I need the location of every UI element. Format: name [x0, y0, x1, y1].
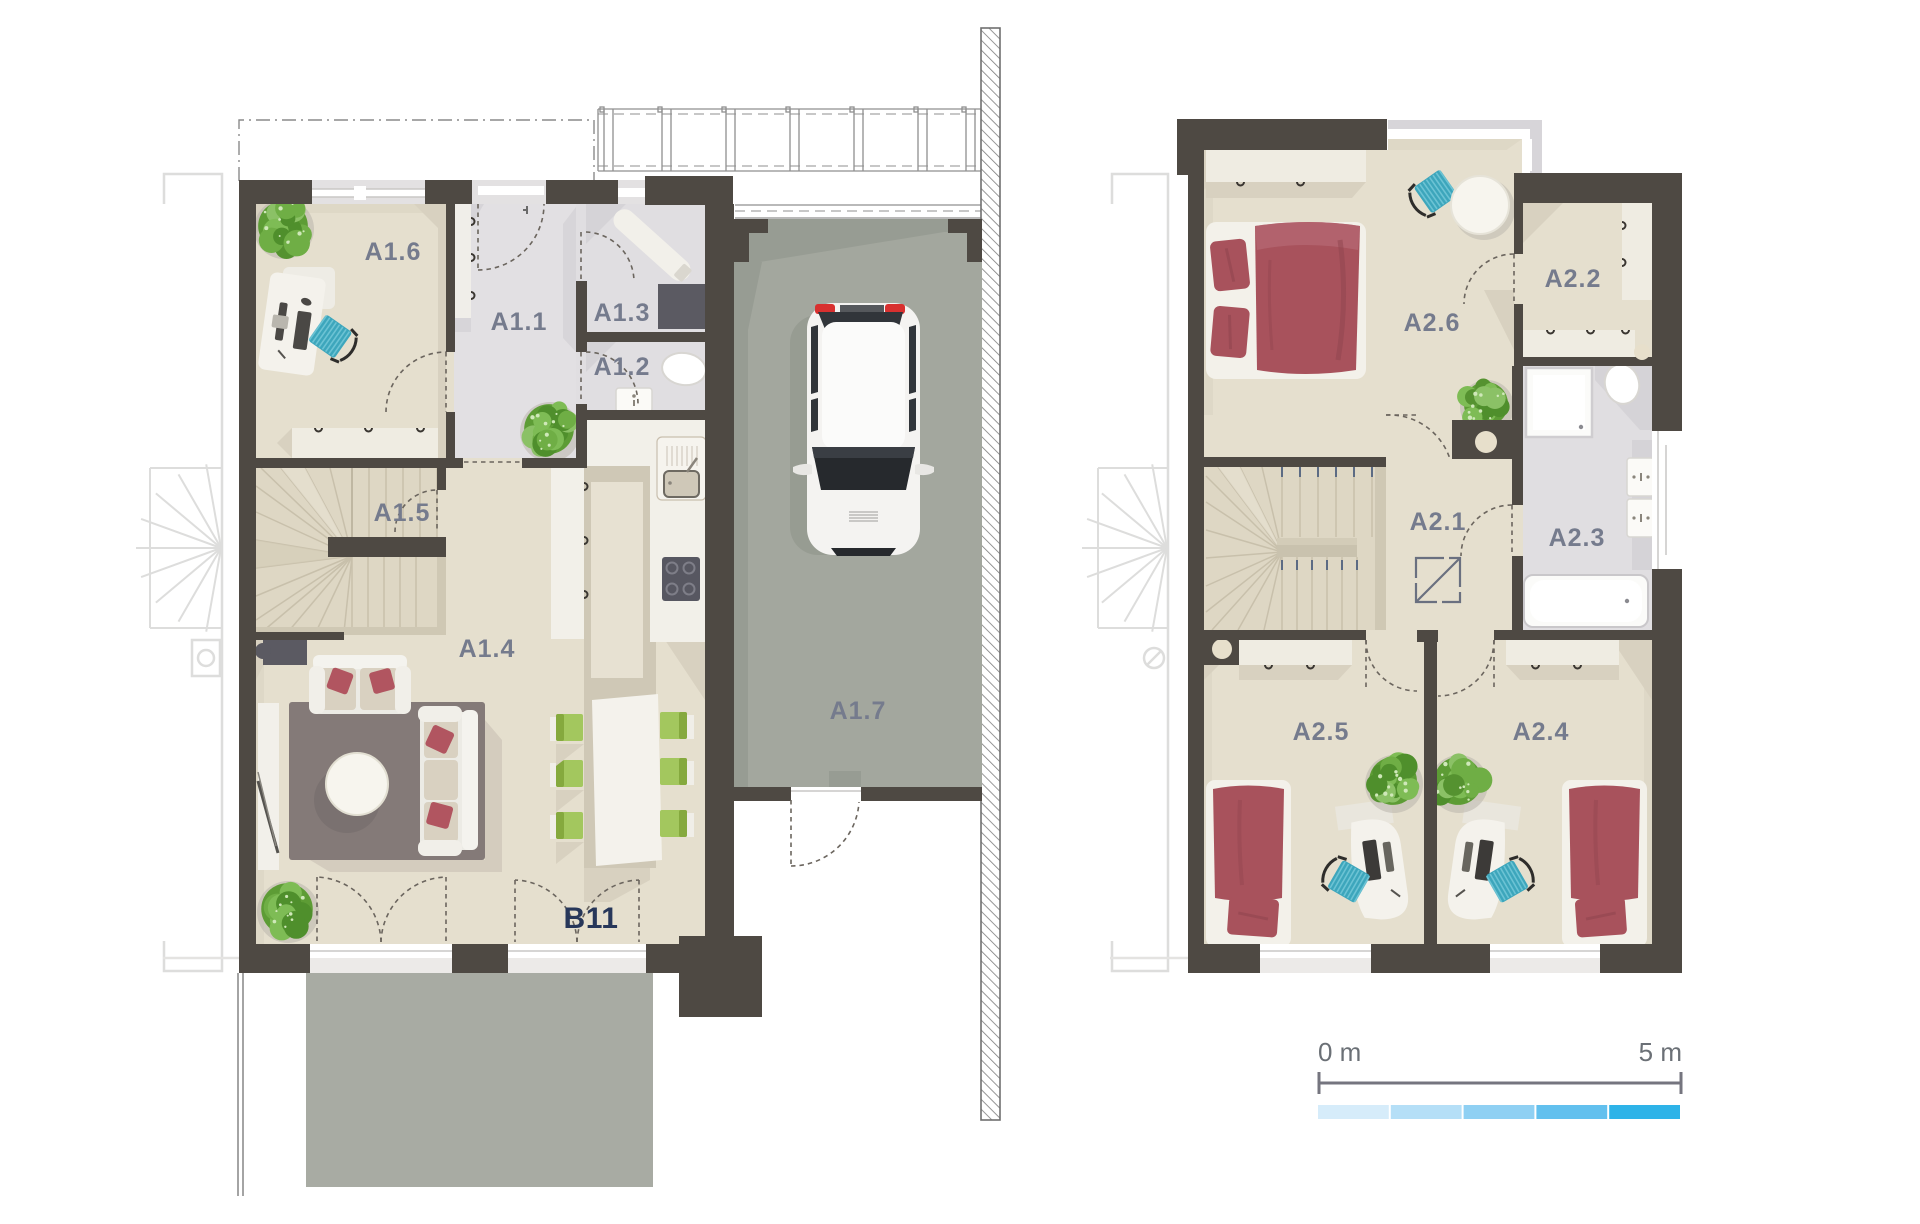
svg-text:A2.6: A2.6: [1404, 309, 1461, 337]
svg-text:A1.6: A1.6: [365, 238, 422, 266]
svg-text:A2.4: A2.4: [1513, 718, 1570, 746]
svg-text:A1.7: A1.7: [830, 697, 887, 725]
svg-text:A2.2: A2.2: [1545, 265, 1602, 293]
svg-text:0 m: 0 m: [1318, 1037, 1361, 1067]
svg-text:5 m: 5 m: [1639, 1037, 1682, 1067]
svg-text:A1.5: A1.5: [374, 499, 431, 527]
svg-text:B11: B11: [564, 902, 619, 935]
svg-text:A2.1: A2.1: [1410, 508, 1467, 536]
svg-text:A2.5: A2.5: [1293, 718, 1350, 746]
svg-text:A1.4: A1.4: [459, 635, 516, 663]
svg-text:A1.1: A1.1: [491, 308, 548, 336]
svg-text:A1.3: A1.3: [594, 299, 651, 327]
svg-text:A1.2: A1.2: [594, 353, 651, 381]
svg-text:A2.3: A2.3: [1549, 524, 1606, 552]
